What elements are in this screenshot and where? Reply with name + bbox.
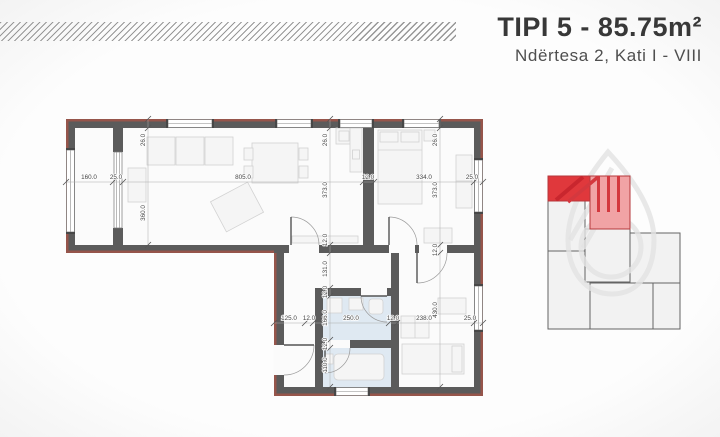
window-top-3 (338, 119, 374, 128)
dim-label: 12.0 (432, 243, 439, 256)
dim-label: 12.0 (322, 233, 329, 246)
window-top-4 (402, 119, 441, 128)
dim-label: 26.0 (322, 133, 329, 146)
dim-label: 131.0 (322, 261, 329, 277)
page: TIPI 5 - 85.75m² Ndërtesa 2, Kati I - VI… (0, 0, 720, 437)
dim-label: 805.0 (235, 174, 251, 181)
window-top-2 (275, 119, 313, 128)
dim-label: 12.0 (303, 315, 316, 322)
floor-plan-canvas: 160.0 25.0 805.0 12.0 334.0 25.0 125.0 1… (0, 0, 720, 437)
dim-label: 430.0 (432, 302, 439, 318)
wardrobe-bedroom1 (456, 155, 472, 208)
desk-bedroom2 (438, 298, 466, 314)
dim-label: 12.0 (322, 337, 329, 350)
window-top-1 (166, 119, 214, 128)
dining-table (244, 143, 308, 183)
dim-label: 373.0 (322, 182, 329, 198)
dim-label: 110.0 (322, 357, 329, 373)
sofa (147, 137, 233, 165)
dim-label: 360.0 (140, 205, 147, 221)
dim-label: 166.0 (322, 310, 329, 326)
key-plan (548, 152, 680, 329)
dim-label: 26.0 (140, 133, 147, 146)
dim-label: 160.0 (81, 174, 97, 181)
desk-bedroom1 (424, 228, 452, 243)
bed-bedroom2 (402, 344, 464, 374)
dim-label: 125.0 (281, 315, 297, 322)
dim-label: 334.0 (416, 174, 432, 181)
entrance-opening (274, 345, 286, 375)
balcony-glazed-door (114, 152, 122, 228)
bed-bedroom1 (378, 130, 422, 204)
toilet (369, 299, 383, 314)
floor-plan: 160.0 25.0 805.0 12.0 334.0 25.0 125.0 1… (63, 116, 486, 396)
window-wc-bottom (334, 387, 370, 396)
dim-label: 12.0 (387, 315, 400, 322)
dim-label: 238.0 (416, 315, 432, 322)
window-balcony-left (66, 148, 75, 234)
dim-label: 250.0 (343, 315, 359, 322)
dim-label: 25.0 (466, 174, 479, 181)
dim-label: 373.0 (432, 182, 439, 198)
dim-label: 25.0 (464, 315, 477, 322)
armchair (128, 168, 146, 202)
washing-machine (327, 298, 342, 313)
dim-label: 26.0 (432, 133, 439, 146)
dim-label: 12.0 (362, 174, 375, 181)
dim-label: 12.0 (322, 285, 329, 298)
dim-label: 25.0 (110, 174, 123, 181)
window-bedroom1-right (474, 158, 483, 214)
